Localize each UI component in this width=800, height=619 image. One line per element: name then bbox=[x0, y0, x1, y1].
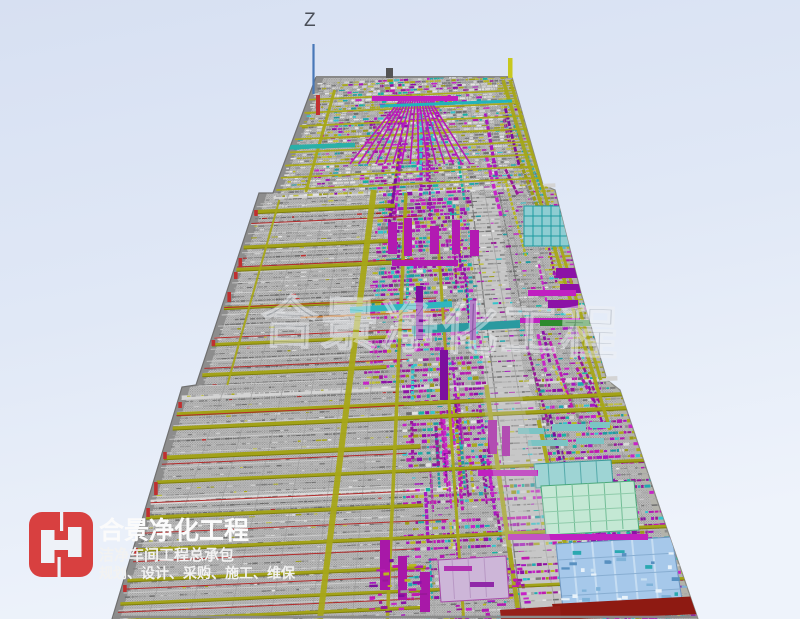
svg-text:Z: Z bbox=[304, 10, 316, 31]
svg-text:合景净化工程: 合景净化工程 bbox=[99, 516, 249, 545]
svg-text:规划、设计、采购、施工、维保: 规划、设计、采购、施工、维保 bbox=[99, 565, 296, 581]
svg-text:洁净车间工程总承包: 洁净车间工程总承包 bbox=[99, 546, 234, 564]
svg-text:合景净化工程: 合景净化工程 bbox=[260, 290, 622, 367]
